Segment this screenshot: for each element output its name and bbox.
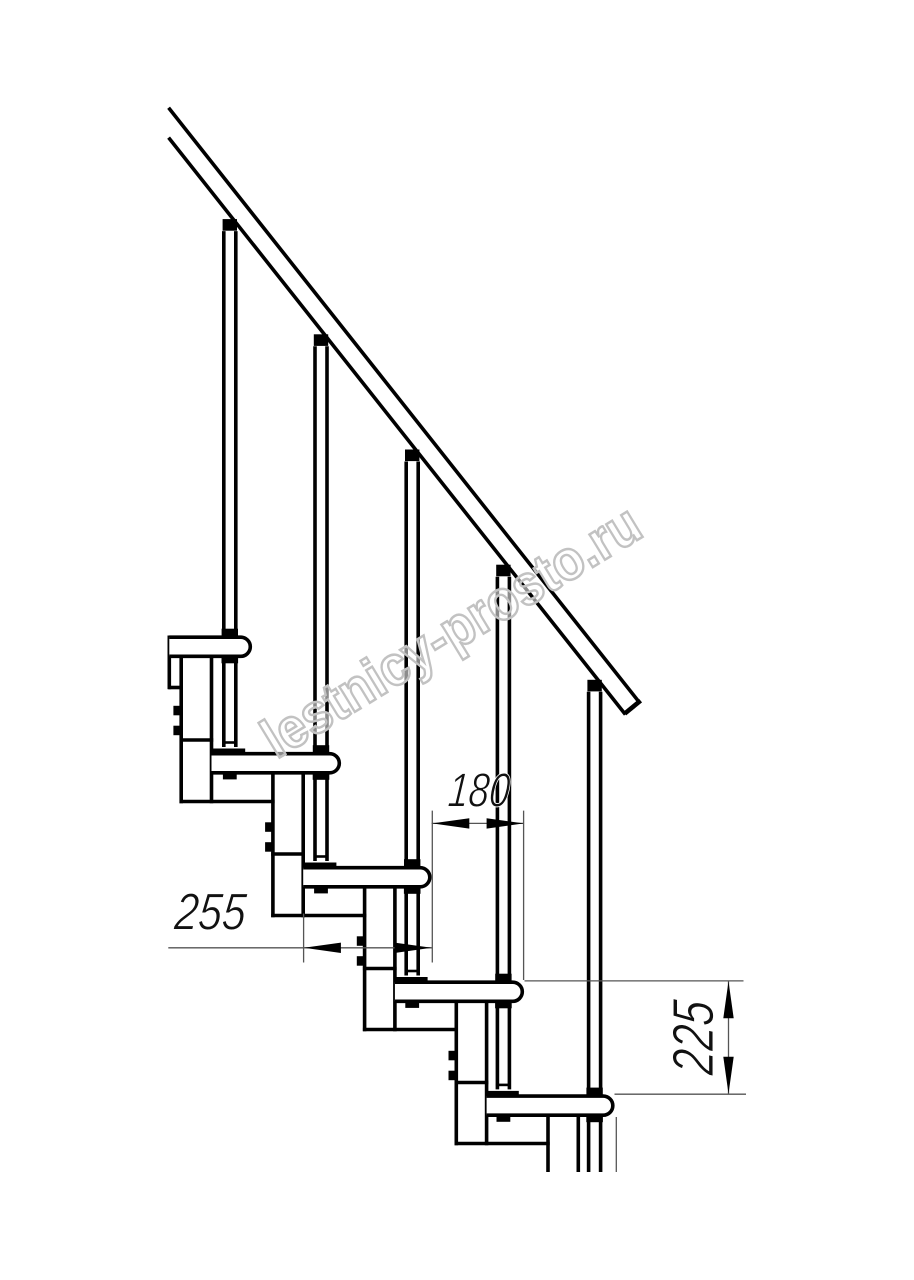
- svg-text:180: 180: [446, 764, 512, 818]
- svg-text:255: 255: [172, 884, 250, 942]
- svg-text:225: 225: [661, 997, 726, 1077]
